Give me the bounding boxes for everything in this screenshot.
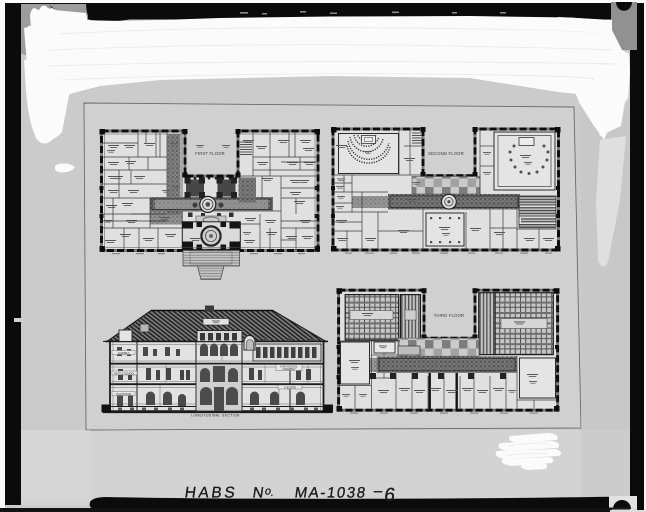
svg-text:THIRD FLOOR: THIRD FLOOR: [434, 313, 465, 318]
svg-text:PLAYROOM: PLAYROOM: [116, 392, 132, 396]
svg-text:BATTLE SCHOOL: BATTLE SCHOOL: [114, 372, 135, 375]
svg-text:GARRET: GARRET: [118, 351, 130, 355]
svg-text:THEATRE: THEATRE: [284, 385, 297, 389]
svg-text:LONGITUDINAL SECTION: LONGITUDINAL SECTION: [191, 414, 240, 418]
svg-text:SECOND FLOOR: SECOND FLOOR: [428, 151, 464, 156]
svg-text:MA-1038: MA-1038: [294, 485, 368, 502]
svg-text:ASSEMBLY: ASSEMBLY: [282, 368, 296, 371]
svg-text:HABS: HABS: [184, 485, 239, 502]
svg-text:FIRST FLOOR: FIRST FLOOR: [195, 151, 225, 156]
